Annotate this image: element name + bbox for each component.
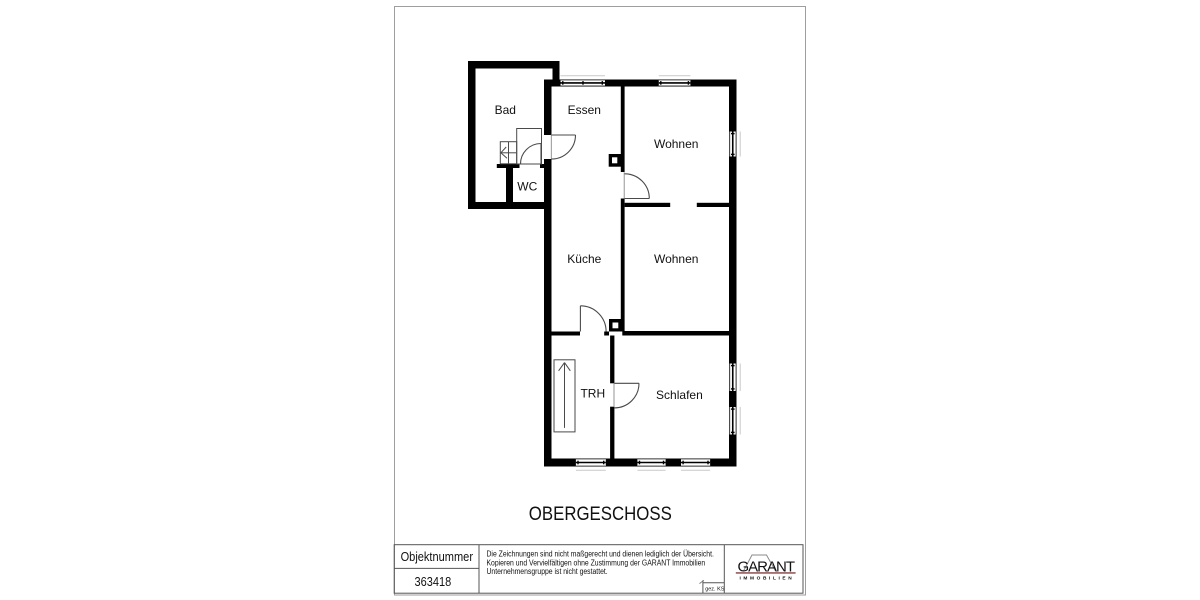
svg-text:Küche: Küche xyxy=(567,252,601,266)
svg-text:OBERGESCHOSS: OBERGESCHOSS xyxy=(529,504,672,525)
svg-text:gez. KS: gez. KS xyxy=(705,586,725,592)
svg-text:Bad: Bad xyxy=(495,103,516,117)
svg-text:Wohnen: Wohnen xyxy=(654,252,698,266)
svg-text:Schlafen: Schlafen xyxy=(656,388,703,402)
svg-text:363418: 363418 xyxy=(415,574,452,589)
svg-text:Unternehmensgruppe ist nicht g: Unternehmensgruppe ist nicht gestattet. xyxy=(487,567,608,576)
svg-text:TRH: TRH xyxy=(580,387,605,401)
svg-text:Die Zeichnungen sind nicht maß: Die Zeichnungen sind nicht maßgerecht un… xyxy=(487,549,714,558)
svg-text:Wohnen: Wohnen xyxy=(654,137,698,151)
svg-text:WC: WC xyxy=(517,180,537,194)
svg-text:IMMOBILIEN: IMMOBILIEN xyxy=(740,576,795,582)
svg-text:Objektnummer: Objektnummer xyxy=(401,549,474,564)
svg-text:Essen: Essen xyxy=(568,103,601,117)
